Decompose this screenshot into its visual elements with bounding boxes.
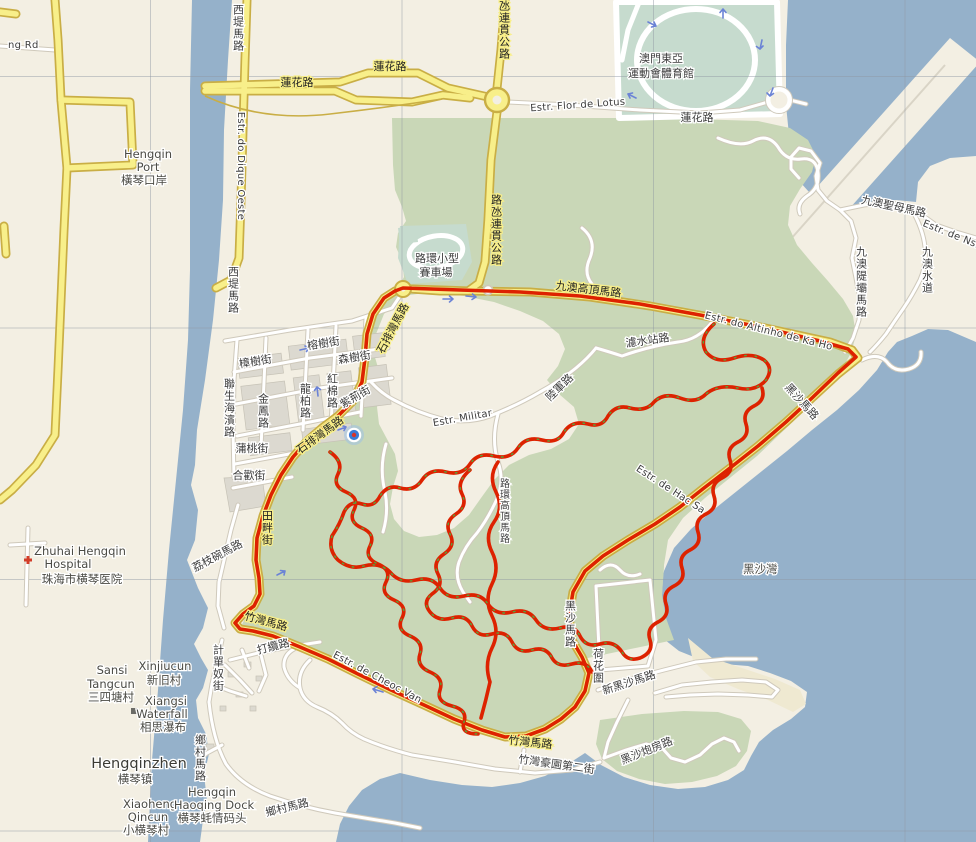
label-hacsa-rd-south: 黑沙馬路 — [564, 600, 577, 648]
label-lotus-rd-east: 蓮花路 — [681, 110, 714, 124]
label-ng-rd: ng Rd — [8, 40, 39, 51]
label-hospital-1: Zhuhai Hengqin — [34, 544, 126, 558]
label-dique-oeste: Estr. do Dique Oeste — [235, 112, 246, 220]
label-xiaoheng-1: Xiaoheng — [123, 797, 177, 811]
label-sansi-3: 三四塘村 — [88, 690, 134, 704]
label-xiangsi-3: 相思瀑布 — [140, 720, 186, 734]
label-xinjiucun-2: 新旧村 — [147, 673, 182, 687]
label-hacsa-bay: 黑沙灣 — [743, 562, 778, 576]
label-xiangsi-2: Waterfall — [136, 707, 187, 721]
label-cotai-highway-mid: 路氹連貫公路 — [490, 194, 503, 266]
label-stadium-line2: 運動會體育館 — [628, 66, 694, 80]
label-haoqing-dock-3: 横琴蚝情码头 — [178, 811, 247, 825]
label-hengqin-port-3: 橫琴口岸 — [121, 173, 167, 187]
label-village-rd-1: 鄉村馬路 — [194, 734, 207, 782]
label-lotus-rd-west: 蓮花路 — [281, 75, 314, 89]
label-xiangsi-1: Xiangsi — [145, 694, 187, 708]
label-sansi-2: Tangcun — [86, 677, 135, 691]
label-pou-tou-st: 蒲桃街 — [236, 441, 269, 455]
label-kam-fung-rd: 金鳳路 — [257, 392, 270, 429]
label-sansi-1: Sansi — [97, 663, 128, 677]
label-hengqin-port-1: Hengqin — [124, 147, 172, 161]
label-tianpan-st: 田畔街 — [261, 510, 274, 546]
label-lin-sang-marginal: 聯生海濱路 — [223, 378, 236, 438]
label-xidi-rd-mid: 西堤馬路 — [227, 266, 240, 314]
label-caetano-st: 計單奴街 — [212, 643, 225, 692]
label-red-cotton-rd: 紅棉路 — [326, 373, 339, 409]
label-lung-paak-rd: 龍柏路 — [299, 382, 312, 419]
label-hengqinzhen-2: 横琴镇 — [118, 772, 153, 786]
label-xiaoheng-3: 小横琴村 — [123, 823, 169, 837]
label-hop-fun-st: 合歡街 — [233, 468, 266, 482]
label-lotus-pond-court: 荷花圍 — [592, 648, 605, 684]
label-hospital-3: 珠海市横琴医院 — [42, 572, 123, 586]
label-haoqing-dock-1: Hengqin — [188, 785, 236, 799]
label-kaho-path: 九澳水道 — [921, 246, 934, 294]
label-lotus-rd-mid: 蓮花路 — [374, 59, 407, 73]
label-stadium-line1: 澳門東亞 — [639, 52, 683, 65]
label-karting-line2: 賽車場 — [420, 265, 453, 279]
label-xinjiucun-1: Xinjiucun — [139, 659, 192, 673]
map-canvas[interactable]: ng Rd 西堤馬路 蓮花路 蓮花路 路氹連貫公路 Estr. do Dique… — [0, 0, 976, 842]
label-kaho-dyke-rd: 九澳隄壩馬路 — [855, 246, 868, 318]
label-alto-coloane-rd: 路環高頂馬路 — [498, 477, 510, 544]
label-cotai-highway-top: 路氹連貫公路 — [498, 0, 511, 60]
label-karting-line1: 路環小型 — [415, 251, 459, 265]
label-haoqing-dock-2: Haoqing Dock — [174, 798, 255, 812]
label-hengqin-port-2: Port — [137, 160, 160, 174]
label-xiaoheng-2: Qincun — [128, 810, 168, 824]
label-hengqinzhen-1: Hengqinzhen — [91, 756, 187, 772]
location-dot-icon[interactable] — [344, 425, 364, 445]
label-hospital-2: Hospital — [45, 557, 92, 571]
label-xidi-rd-top: 西堤馬路 — [232, 4, 245, 52]
